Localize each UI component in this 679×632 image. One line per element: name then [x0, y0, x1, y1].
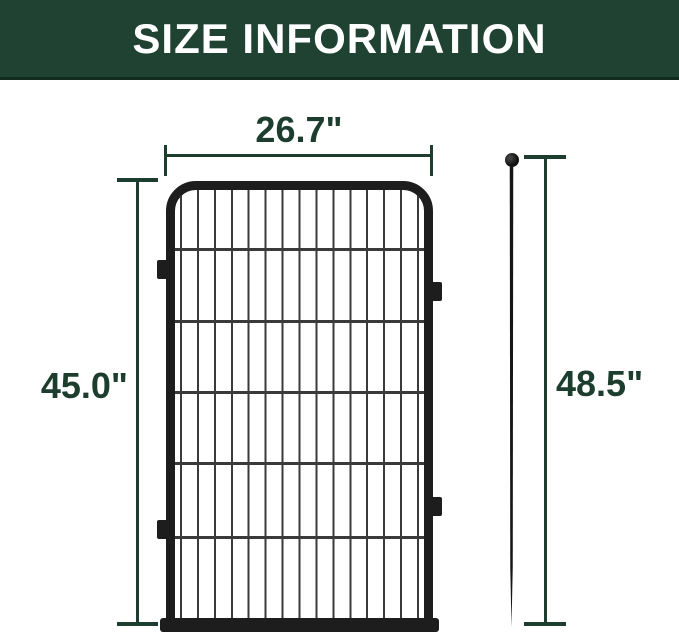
stake-dimension-label: 48.5"	[556, 364, 643, 404]
connector-tab-right-upper	[431, 282, 442, 301]
page-title: SIZE INFORMATION	[132, 0, 546, 79]
fence-panel	[166, 181, 433, 631]
fence-panel-vertical-bars	[180, 190, 419, 621]
stake-dimension-line	[544, 157, 547, 626]
height-dimension-cap-bottom	[117, 622, 158, 626]
fence-panel-horizontal-wire	[175, 248, 424, 251]
width-dimension-tick-right	[430, 145, 433, 176]
stake-shaft	[509, 166, 514, 627]
fence-panel-frame	[166, 181, 433, 630]
width-dimension-line	[165, 154, 433, 157]
connector-tab-right-lower	[431, 497, 442, 516]
width-dimension-tick-left	[164, 145, 167, 176]
stake-dimension-cap-bottom	[524, 622, 566, 626]
connector-tab-left-upper	[157, 260, 168, 279]
fence-panel-bottom-rail	[160, 618, 439, 632]
stake-dimension-cap-top	[524, 155, 566, 159]
stake-ball-top	[505, 153, 519, 167]
header-banner: SIZE INFORMATION	[0, 0, 679, 80]
height-dimension-line	[136, 179, 139, 626]
height-dimension-cap-top	[117, 178, 158, 182]
fence-panel-horizontal-wire	[175, 391, 424, 394]
height-dimension-label: 45.0"	[18, 366, 128, 406]
fence-panel-horizontal-wire	[175, 320, 424, 323]
connector-tab-left-lower	[157, 520, 168, 539]
width-dimension-label: 26.7"	[199, 110, 399, 150]
fence-panel-horizontal-wire	[175, 536, 424, 539]
size-infographic: SIZE INFORMATION 26.7" 45.0" 48.5"	[0, 0, 679, 632]
fence-panel-horizontal-wire	[175, 462, 424, 465]
